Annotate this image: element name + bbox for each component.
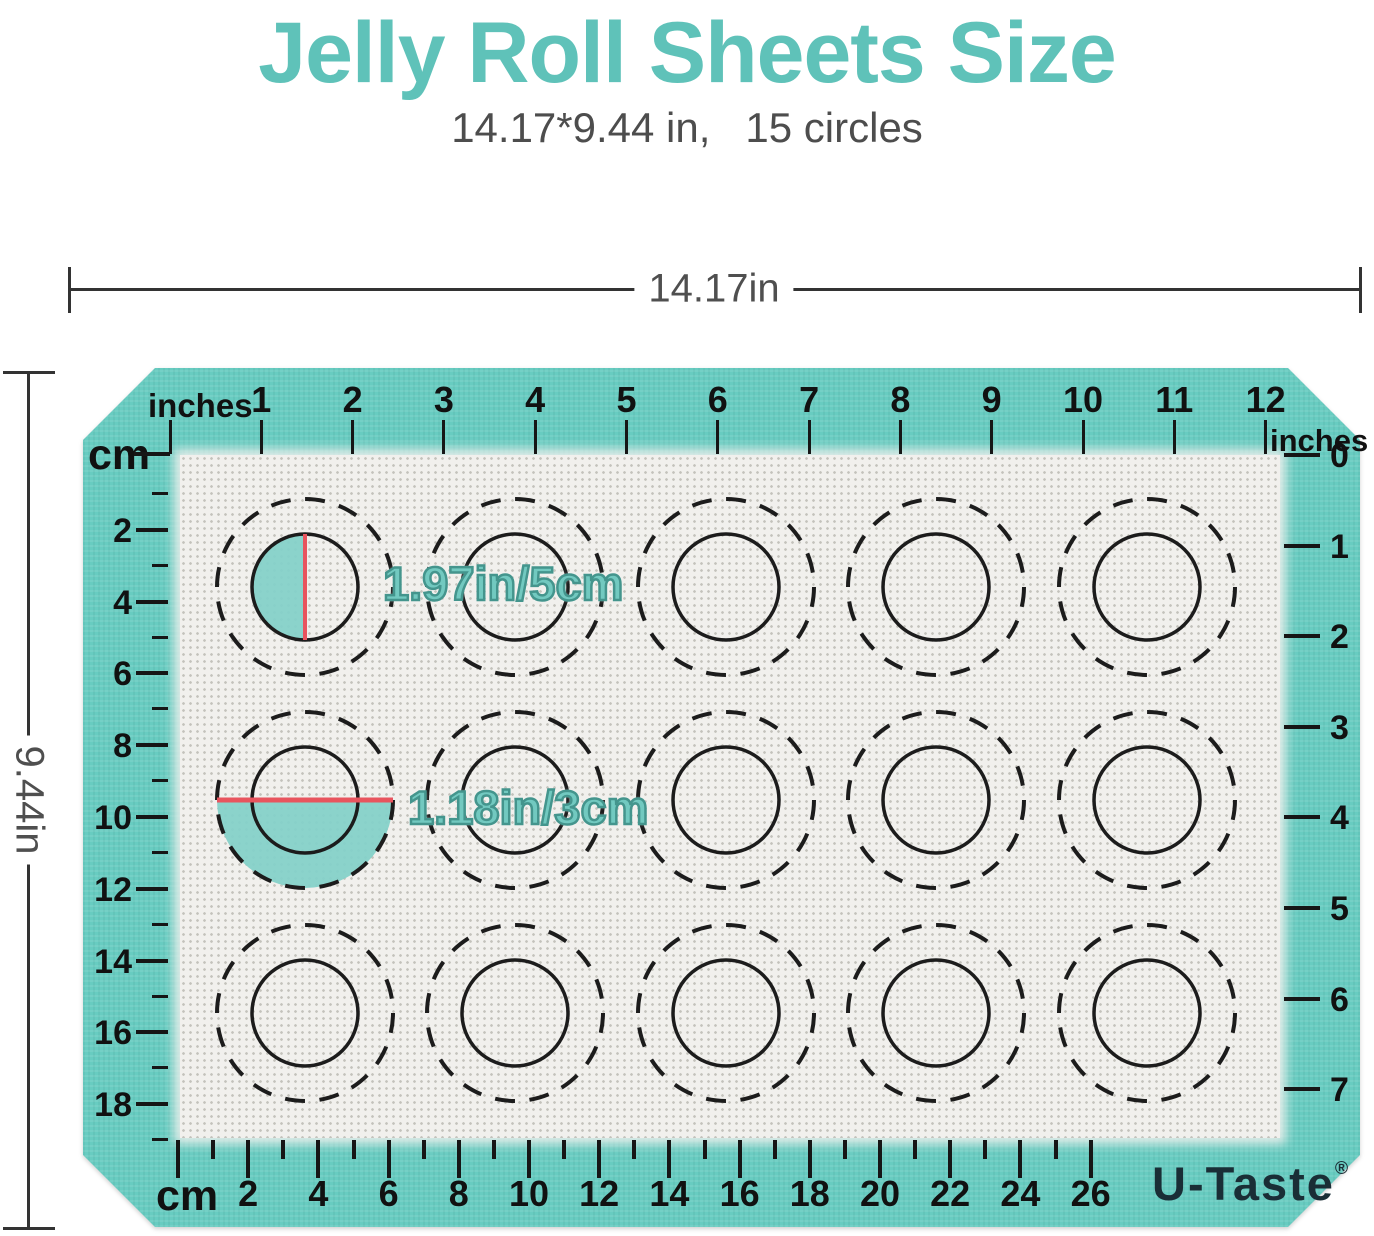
right-ruler-tick (1284, 815, 1320, 819)
top-ruler-tick (808, 420, 811, 454)
guide-circle-outer-dashed (1059, 712, 1235, 888)
product-size-infographic: Jelly Roll Sheets Size 14.17*9.44 in, 15… (0, 0, 1374, 1236)
bottom-ruler-tick (352, 1140, 356, 1159)
guide-circle-inner (1094, 960, 1200, 1066)
guide-circle-inner (1094, 747, 1200, 853)
left-ruler-tick (152, 1066, 168, 1069)
left-ruler-tick (136, 600, 168, 604)
bottom-ruler-number: 20 (850, 1176, 910, 1212)
left-ruler-tick (136, 815, 168, 819)
bottom-ruler-tick (632, 1140, 636, 1159)
top-ruler-tick (534, 420, 537, 454)
left-ruler-tick (152, 923, 168, 926)
bottom-ruler-tick (176, 1140, 180, 1178)
highlight-half-outer-circle (217, 800, 393, 888)
brand-name: U-Taste (1152, 1157, 1335, 1210)
top-ruler-tick (1082, 420, 1085, 454)
top-ruler-tick (260, 420, 263, 454)
circle-diameter-annotation-3cm: 1.18in/3cm (408, 780, 648, 835)
left-ruler-zero-tick (134, 452, 170, 456)
guide-circle-inner (673, 960, 779, 1066)
left-ruler-number: 14 (82, 945, 132, 979)
left-ruler-tick (152, 564, 168, 567)
right-ruler-number: 6 (1330, 983, 1349, 1017)
guide-circle-inner (883, 747, 989, 853)
right-ruler-tick (1284, 634, 1320, 638)
right-ruler-number: 3 (1330, 711, 1349, 745)
bottom-ruler-tick (211, 1140, 215, 1159)
left-ruler-number: 16 (82, 1016, 132, 1050)
left-ruler-tick (136, 743, 168, 747)
guide-circle-outer-dashed (848, 925, 1024, 1101)
bottom-ruler-tick (281, 1140, 285, 1159)
right-ruler-number: 0 (1330, 439, 1349, 473)
guide-circle-outer-dashed (848, 712, 1024, 888)
top-ruler-tick (716, 420, 719, 454)
left-ruler-tick (136, 1102, 168, 1106)
guide-circle-inner (673, 534, 779, 640)
bottom-ruler-number: 18 (780, 1176, 840, 1212)
right-ruler-tick (1284, 544, 1320, 548)
guide-circle-outer-dashed (427, 925, 603, 1101)
bottom-ruler-number: 6 (359, 1176, 419, 1212)
bottom-ruler-number: 14 (639, 1176, 699, 1212)
left-ruler-number: 6 (82, 657, 132, 691)
bottom-ruler-number: 22 (920, 1176, 980, 1212)
top-ruler-number: 3 (414, 382, 474, 418)
left-ruler-tick (152, 779, 168, 782)
left-ruler-number: 18 (82, 1088, 132, 1122)
top-ruler-tick (1173, 420, 1176, 454)
bottom-ruler-number: 24 (990, 1176, 1050, 1212)
right-ruler-number: 1 (1330, 530, 1349, 564)
bottom-ruler-tick (843, 1140, 847, 1159)
guide-circle-outer-dashed (848, 499, 1024, 675)
top-ruler-tick (990, 420, 993, 454)
guide-circle-outer-dashed (1059, 925, 1235, 1101)
left-ruler-tick (152, 492, 168, 495)
guide-circle-inner (883, 960, 989, 1066)
top-ruler-tick (351, 420, 354, 454)
left-ruler-tick (136, 671, 168, 675)
guide-circle-outer-dashed (638, 925, 814, 1101)
left-ruler-tick (136, 887, 168, 891)
top-ruler-tick (1264, 420, 1267, 454)
bottom-ruler-tick (492, 1140, 496, 1159)
guide-circle-inner (1094, 534, 1200, 640)
bottom-ruler-tick (983, 1140, 987, 1159)
guide-circle-inner (673, 747, 779, 853)
bottom-ruler-number: 26 (1061, 1176, 1121, 1212)
left-ruler-number: 12 (82, 873, 132, 907)
right-ruler-tick (1284, 453, 1320, 457)
highlight-half-inner-circle (252, 534, 305, 640)
bottom-ruler-tick (562, 1140, 566, 1159)
left-ruler-tick (152, 851, 168, 854)
right-ruler-number: 7 (1330, 1073, 1349, 1107)
circle-diameter-annotation-5cm: 1.97in/5cm (383, 556, 623, 611)
left-ruler-number: 4 (82, 586, 132, 620)
left-ruler-tick (136, 528, 168, 532)
top-ruler-tick (169, 420, 172, 454)
top-ruler-number: 10 (1053, 382, 1113, 418)
right-ruler-tick (1284, 725, 1320, 729)
right-ruler-number: 4 (1330, 801, 1349, 835)
right-ruler-number: 5 (1330, 892, 1349, 926)
bottom-ruler-number: 2 (218, 1176, 278, 1212)
guide-circle-outer-dashed (1059, 499, 1235, 675)
top-ruler-number: 12 (1236, 382, 1296, 418)
left-ruler-tick (152, 995, 168, 998)
guide-circle-inner (883, 534, 989, 640)
right-ruler-number: 2 (1330, 620, 1349, 654)
top-ruler-number: 8 (870, 382, 930, 418)
top-ruler-number: 2 (323, 382, 383, 418)
bottom-ruler-number: 12 (569, 1176, 629, 1212)
bottom-ruler-tick (422, 1140, 426, 1159)
left-ruler-tick (152, 707, 168, 710)
bottom-ruler-tick (773, 1140, 777, 1159)
bottom-ruler-tick (913, 1140, 917, 1159)
top-ruler-number: 4 (505, 382, 565, 418)
bottom-ruler-number: 10 (499, 1176, 559, 1212)
left-ruler-number: 8 (82, 729, 132, 763)
left-ruler-tick (136, 959, 168, 963)
top-ruler-number: 1 (231, 382, 291, 418)
top-ruler-tick (442, 420, 445, 454)
bottom-ruler-tick (1054, 1140, 1058, 1159)
guide-circle-inner (252, 960, 358, 1066)
left-ruler-number: 10 (82, 801, 132, 835)
top-ruler-tick (625, 420, 628, 454)
bottom-ruler-tick (703, 1140, 707, 1159)
bottom-ruler-number: 8 (429, 1176, 489, 1212)
left-ruler-number: 2 (82, 514, 132, 548)
top-ruler-number: 7 (779, 382, 839, 418)
top-ruler-number: 5 (597, 382, 657, 418)
top-ruler-tick (899, 420, 902, 454)
top-ruler-number: 6 (688, 382, 748, 418)
guide-circle-outer-dashed (217, 925, 393, 1101)
left-ruler-tick (136, 1030, 168, 1034)
top-ruler-number: 11 (1144, 382, 1204, 418)
bottom-ruler-number: 16 (710, 1176, 770, 1212)
registered-mark: ® (1335, 1158, 1348, 1178)
guide-circle-outer-dashed (638, 499, 814, 675)
right-ruler-tick (1284, 1087, 1320, 1091)
right-ruler-tick (1284, 906, 1320, 910)
top-ruler-number: 9 (962, 382, 1022, 418)
left-ruler-tick (152, 1138, 168, 1141)
bottom-ruler-number: 4 (288, 1176, 348, 1212)
guide-circle-inner (462, 960, 568, 1066)
circle-guides (0, 0, 1374, 1236)
brand-logo: U-Taste® (1152, 1156, 1348, 1211)
left-ruler-tick (152, 636, 168, 639)
right-ruler-tick (1284, 997, 1320, 1001)
bottom-ruler-unit-label: cm (156, 1172, 218, 1221)
guide-circle-outer-dashed (638, 712, 814, 888)
